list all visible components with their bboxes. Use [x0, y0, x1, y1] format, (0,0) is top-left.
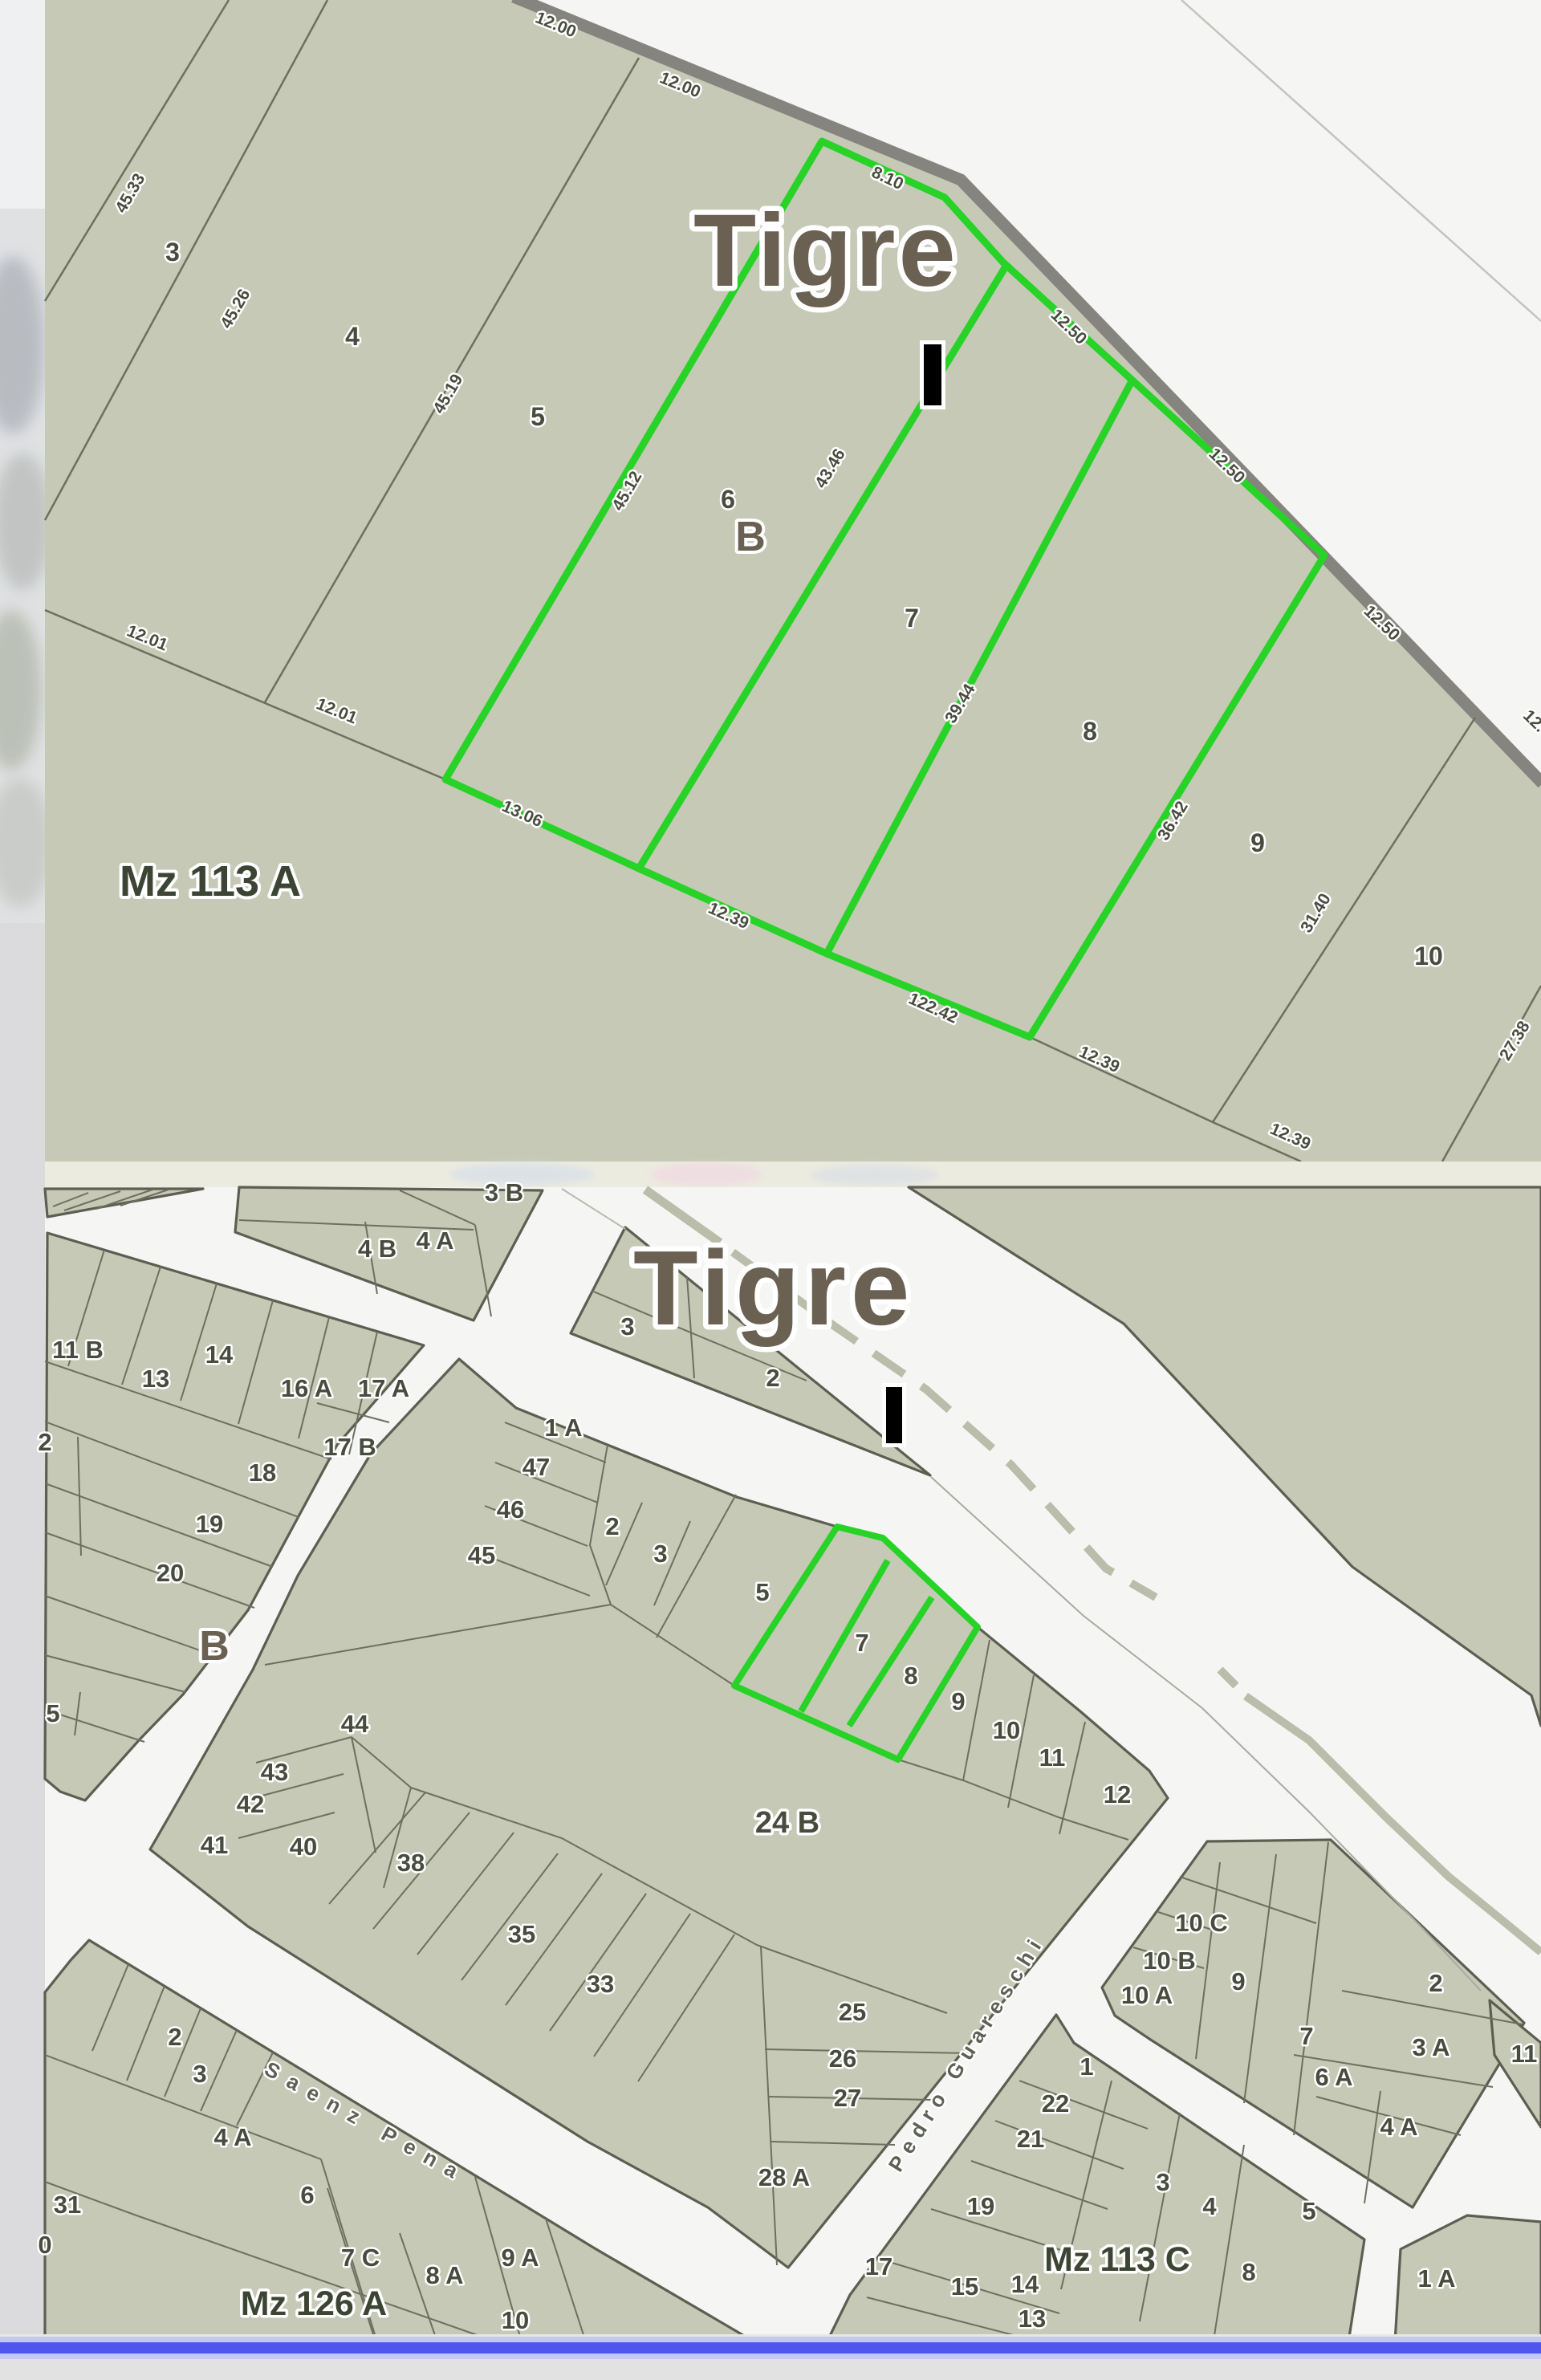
- svg-text:11 B: 11 B: [52, 1336, 104, 1364]
- svg-text:5: 5: [531, 402, 545, 431]
- svg-text:24 B: 24 B: [755, 1806, 819, 1840]
- svg-text:11: 11: [1511, 2040, 1538, 2068]
- svg-text:42: 42: [237, 1790, 264, 1818]
- svg-text:17 B: 17 B: [323, 1433, 376, 1461]
- svg-text:8: 8: [1242, 2258, 1255, 2286]
- svg-text:22: 22: [1042, 2089, 1069, 2118]
- svg-text:Tigre: Tigre: [633, 1229, 914, 1347]
- svg-text:7 C: 7 C: [341, 2244, 380, 2272]
- svg-text:27: 27: [834, 2084, 861, 2112]
- svg-text:13: 13: [1019, 2305, 1046, 2333]
- svg-text:9: 9: [1231, 1967, 1245, 1996]
- svg-text:5: 5: [755, 1578, 769, 1606]
- svg-text:3: 3: [165, 238, 180, 266]
- svg-text:35: 35: [508, 1920, 535, 1948]
- svg-text:10 B: 10 B: [1143, 1947, 1195, 1975]
- svg-text:2: 2: [1429, 1969, 1442, 1997]
- svg-text:19: 19: [196, 1510, 223, 1538]
- svg-text:4 A: 4 A: [416, 1227, 453, 1255]
- svg-text:43: 43: [261, 1758, 288, 1786]
- svg-text:8: 8: [1083, 717, 1097, 746]
- svg-text:12: 12: [1104, 1780, 1131, 1808]
- svg-text:4: 4: [345, 322, 360, 351]
- svg-text:9 A: 9 A: [501, 2244, 539, 2272]
- svg-text:9: 9: [951, 1687, 965, 1715]
- svg-text:0: 0: [38, 2231, 51, 2259]
- svg-text:Mz 113 C: Mz 113 C: [1044, 2240, 1190, 2279]
- svg-text:14: 14: [205, 1341, 234, 1369]
- svg-text:7: 7: [905, 604, 919, 633]
- svg-text:8: 8: [904, 1662, 917, 1690]
- svg-text:7: 7: [1299, 2022, 1313, 2050]
- svg-text:2: 2: [168, 2023, 181, 2051]
- svg-text:3: 3: [1156, 2168, 1169, 2196]
- svg-text:28 A: 28 A: [758, 2163, 810, 2191]
- svg-text:5: 5: [1302, 2197, 1315, 2225]
- svg-text:6: 6: [721, 485, 735, 514]
- svg-text:45: 45: [468, 1541, 495, 1569]
- svg-text:1: 1: [1080, 2052, 1093, 2081]
- svg-text:10 A: 10 A: [1121, 1981, 1173, 2009]
- svg-text:14: 14: [1011, 2270, 1039, 2298]
- svg-text:4 A: 4 A: [213, 2123, 251, 2151]
- svg-text:38: 38: [397, 1849, 425, 1877]
- svg-text:11: 11: [1039, 1743, 1066, 1772]
- svg-text:B: B: [735, 514, 766, 560]
- svg-text:2: 2: [605, 1512, 619, 1540]
- svg-text:4 B: 4 B: [358, 1235, 396, 1263]
- svg-text:7: 7: [855, 1629, 868, 1657]
- svg-text:3: 3: [653, 1540, 667, 1568]
- svg-text:Tigre: Tigre: [693, 193, 959, 308]
- svg-text:20: 20: [157, 1559, 184, 1587]
- svg-text:47: 47: [522, 1453, 550, 1481]
- svg-text:8 A: 8 A: [425, 2261, 463, 2289]
- svg-text:6 A: 6 A: [1315, 2063, 1352, 2091]
- svg-text:21: 21: [1017, 2125, 1044, 2153]
- svg-text:1 A: 1 A: [1417, 2264, 1455, 2293]
- svg-text:16 A: 16 A: [281, 1374, 332, 1402]
- svg-text:10: 10: [1414, 942, 1443, 970]
- svg-text:25: 25: [839, 1998, 866, 2026]
- svg-text:Mz 126 A: Mz 126 A: [241, 2284, 387, 2323]
- svg-text:10 C: 10 C: [1175, 1909, 1227, 1937]
- svg-text:3 A: 3 A: [1412, 2033, 1450, 2061]
- svg-text:2: 2: [766, 1364, 779, 1392]
- svg-text:3: 3: [193, 2060, 206, 2088]
- svg-text:5: 5: [46, 1699, 59, 1727]
- svg-text:18: 18: [249, 1459, 276, 1487]
- svg-text:6: 6: [300, 2181, 314, 2209]
- svg-text:4: 4: [1202, 2192, 1217, 2220]
- svg-text:B: B: [199, 1623, 230, 1670]
- svg-text:26: 26: [829, 2044, 856, 2073]
- svg-text:1 A: 1 A: [544, 1414, 582, 1442]
- svg-text:3 B: 3 B: [485, 1178, 523, 1206]
- svg-text:31: 31: [54, 2191, 81, 2219]
- svg-text:4 A: 4 A: [1380, 2113, 1417, 2141]
- svg-text:17 A: 17 A: [358, 1374, 409, 1402]
- svg-text:10: 10: [993, 1716, 1020, 1744]
- svg-text:19: 19: [967, 2192, 994, 2220]
- svg-text:17: 17: [865, 2252, 892, 2280]
- svg-text:9: 9: [1250, 828, 1265, 857]
- svg-text:41: 41: [201, 1831, 228, 1859]
- svg-text:15: 15: [951, 2272, 978, 2301]
- svg-text:40: 40: [290, 1833, 317, 1861]
- svg-text:33: 33: [587, 1970, 614, 1998]
- svg-text:13: 13: [142, 1365, 169, 1393]
- svg-text:10: 10: [502, 2306, 529, 2334]
- svg-text:2: 2: [38, 1428, 51, 1456]
- svg-text:Mz 113 A: Mz 113 A: [120, 857, 301, 905]
- svg-text:46: 46: [497, 1495, 524, 1524]
- svg-text:44: 44: [341, 1710, 369, 1738]
